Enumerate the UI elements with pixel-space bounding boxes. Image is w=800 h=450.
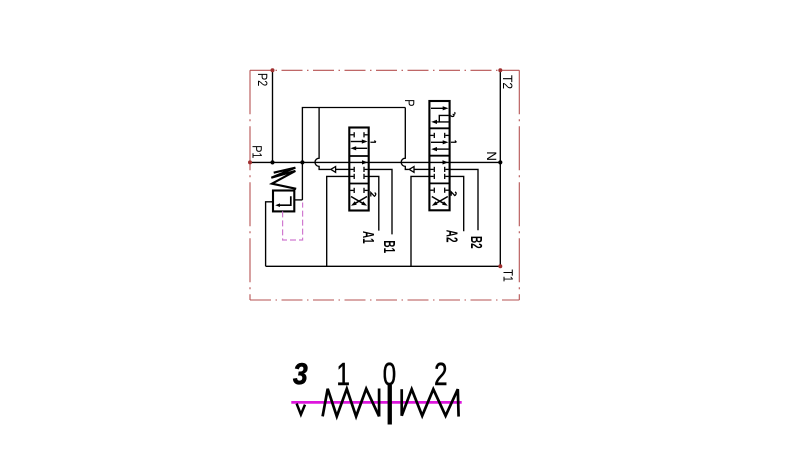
svg-text:3: 3 — [293, 358, 308, 391]
svg-text:B2: B2 — [467, 236, 484, 249]
svg-text:T2: T2 — [500, 75, 515, 89]
svg-text:P1: P1 — [249, 145, 264, 158]
svg-text:T1: T1 — [501, 269, 516, 282]
svg-text:N: N — [484, 151, 499, 161]
svg-text:P2: P2 — [255, 73, 270, 86]
svg-text:A2: A2 — [442, 230, 459, 243]
svg-text:2: 2 — [434, 356, 447, 392]
svg-text:1: 1 — [337, 356, 350, 392]
svg-text:P: P — [402, 99, 417, 106]
svg-text:B1: B1 — [380, 240, 397, 253]
svg-text:A1: A1 — [359, 231, 376, 244]
